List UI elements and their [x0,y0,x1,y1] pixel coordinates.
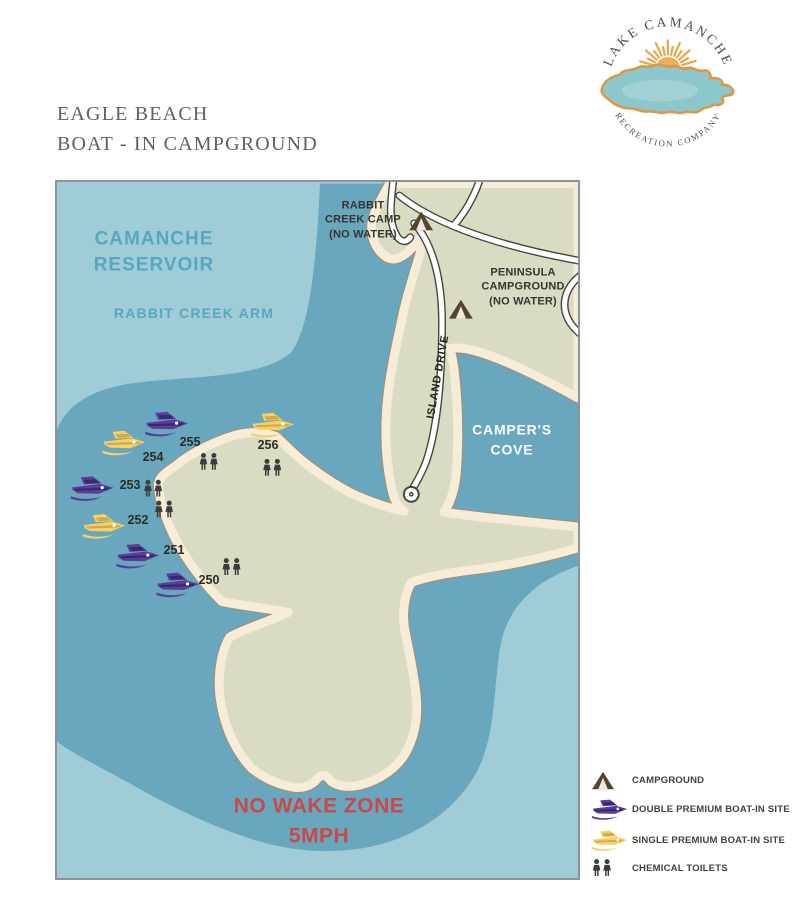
title-line-2: BOAT - IN CAMPGROUND [57,129,318,159]
label-rabbit-creek-arm: RABBIT CREEK ARM [114,305,274,321]
page-title: EAGLE BEACH BOAT - IN CAMPGROUND [57,99,318,159]
double-premium-boat-icon [145,412,188,437]
chemical-toilets-icon [223,558,241,575]
legend-row-campground: CAMPGROUND [592,771,797,790]
lake-camanche-logo: LAKE CAMANCHE RECREATION COMPANY [588,10,748,160]
site-number-250: 250 [199,573,220,587]
double-premium-boat-icon [71,476,114,501]
chemical-toilets-icon [592,859,632,877]
label-camanche-reservoir: CAMANCHE RESERVOIR [94,226,215,277]
site-number-256: 256 [258,438,279,452]
lake-highlight [622,80,698,102]
label-no-wake-zone: NO WAKE ZONE 5MPH [234,792,405,853]
single-premium-boat-icon [592,828,632,852]
legend-label: CHEMICAL TOILETS [632,863,728,874]
site-number-255: 255 [180,435,201,449]
campground-icon [409,211,433,230]
logo-arc-bottom-text: RECREATION COMPANY [613,111,722,149]
legend-label: SINGLE PREMIUM BOAT-IN SITE [632,835,785,846]
site-number-253: 253 [120,478,141,492]
single-premium-boat-icon [83,514,126,539]
chemical-toilets-icon [155,501,173,518]
legend-row-single-premium: SINGLE PREMIUM BOAT-IN SITE [592,828,797,852]
single-premium-boat-icon [252,413,295,438]
site-number-251: 251 [164,543,185,557]
site-number-254: 254 [143,450,164,464]
campground-map: CAMANCHE RESERVOIR RABBIT CREEK ARM RABB… [55,180,580,880]
campground-icon [592,771,632,790]
single-premium-boat-icon [103,431,146,456]
legend-label: DOUBLE PREMIUM BOAT-IN SITE [632,804,790,815]
label-peninsula-campground: PENINSULA CAMPGROUND (NO WATER) [481,266,564,309]
legend-row-double-premium: DOUBLE PREMIUM BOAT-IN SITE [592,797,797,821]
label-campers-cove: CAMPER'S COVE [472,420,552,459]
legend-row-chemical-toilets: CHEMICAL TOILETS [592,859,797,877]
map-legend: CAMPGROUND DOUBLE PREMIUM BOAT-IN SITE S… [592,771,797,884]
campground-icon [449,300,473,319]
title-line-1: EAGLE BEACH [57,99,318,129]
chemical-toilets-icon [263,459,281,476]
double-premium-boat-icon [117,544,160,569]
site-number-252: 252 [128,513,149,527]
double-premium-boat-icon [156,573,199,598]
chemical-toilets-icon [144,480,162,497]
legend-label: CAMPGROUND [632,775,704,786]
chemical-toilets-icon [200,453,218,470]
double-premium-boat-icon [592,797,632,821]
page: EAGLE BEACH BOAT - IN CAMPGROUND LAKE CA… [0,0,800,902]
label-rabbit-creek-camp: RABBIT CREEK CAMP (NO WATER) [325,199,401,242]
